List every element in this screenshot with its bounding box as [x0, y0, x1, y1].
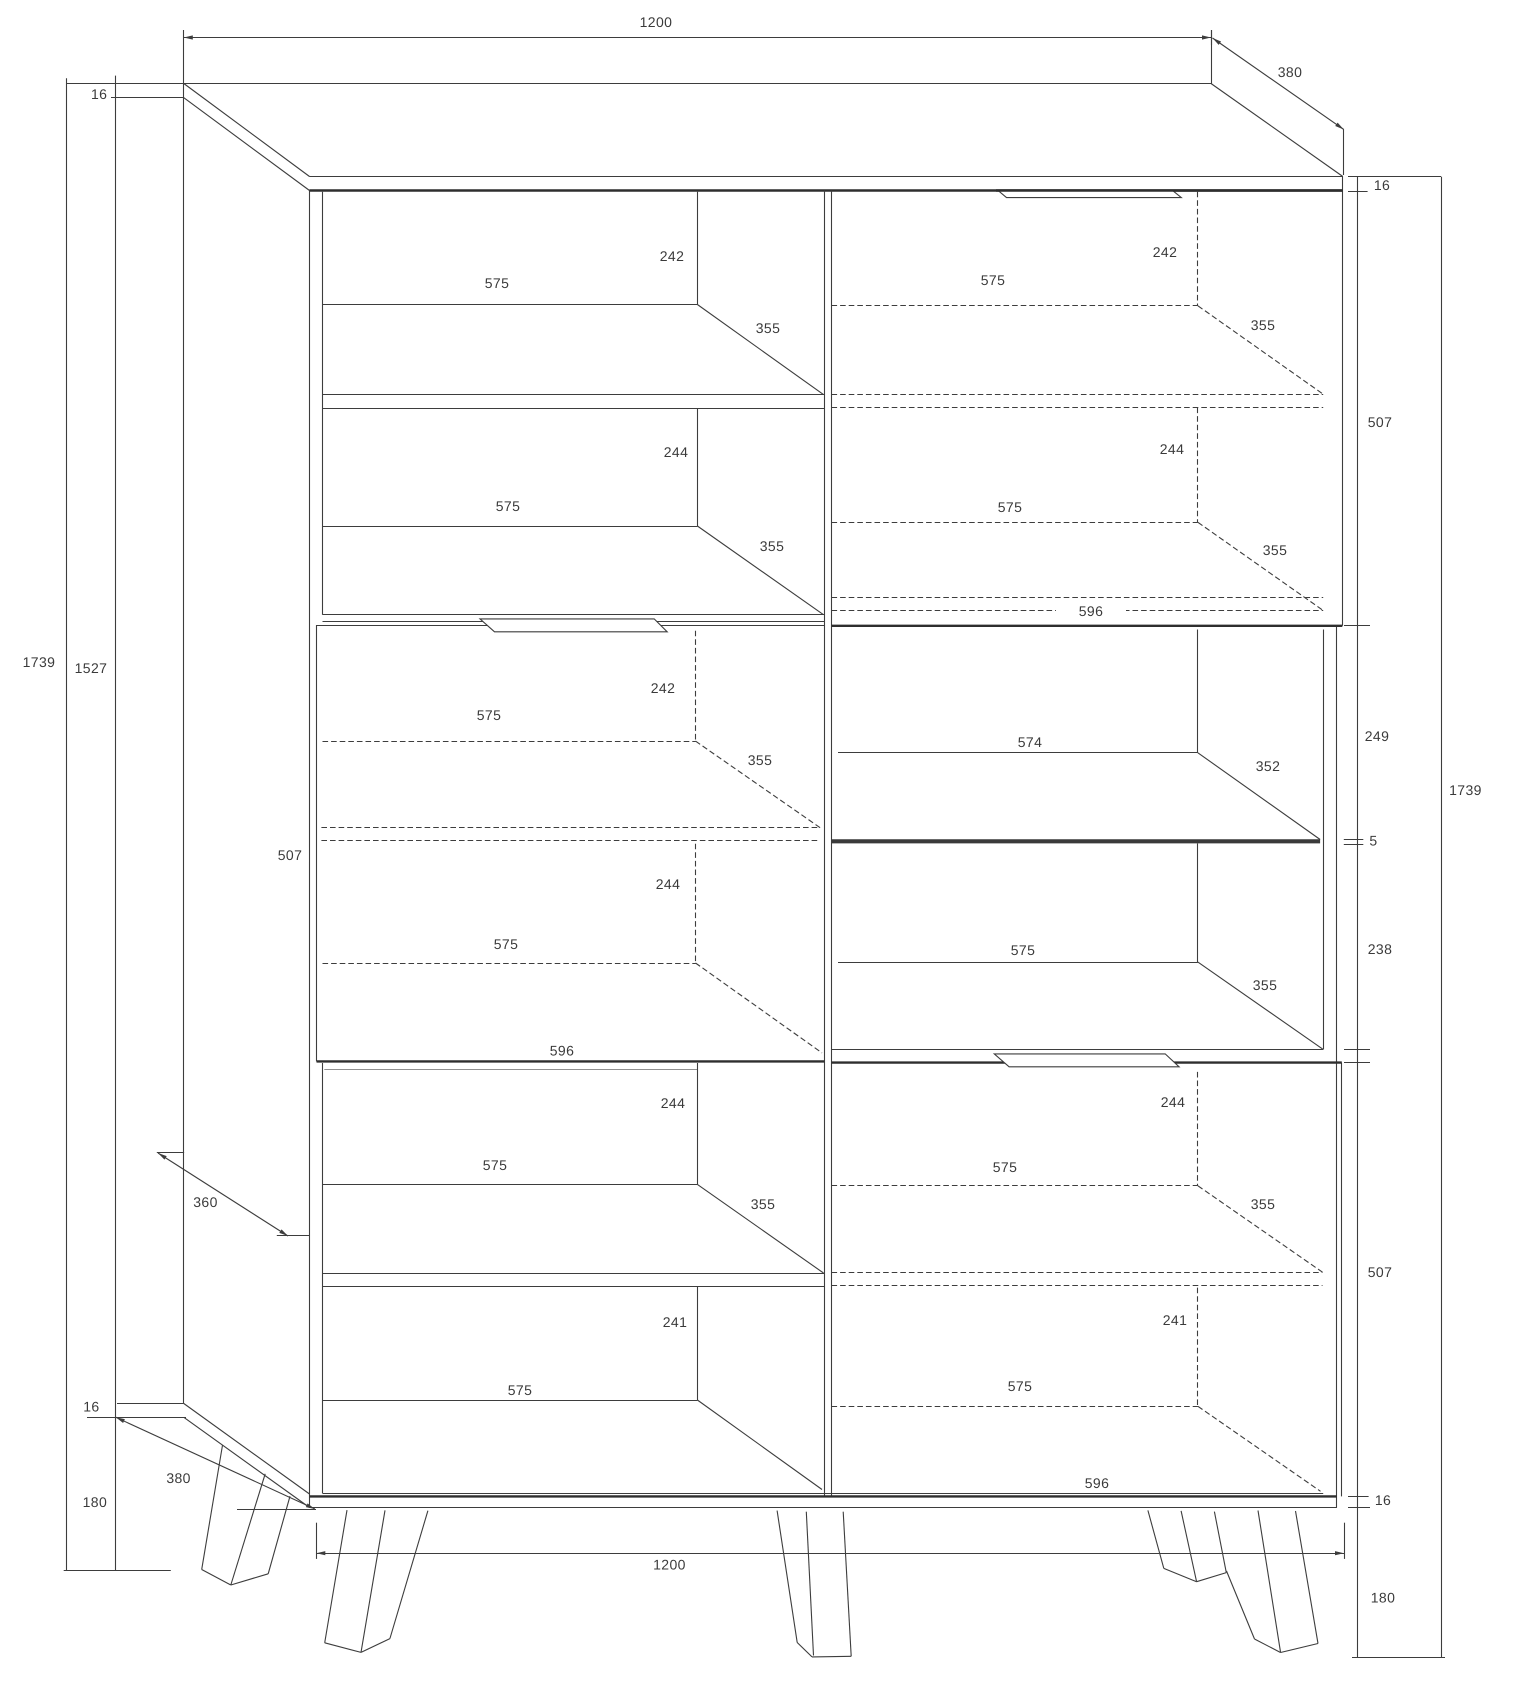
svg-text:16: 16 [91, 86, 107, 102]
svg-text:575: 575 [485, 275, 510, 291]
svg-text:380: 380 [1278, 64, 1303, 80]
svg-text:1739: 1739 [1449, 782, 1482, 798]
svg-text:575: 575 [508, 1382, 533, 1398]
svg-text:241: 241 [663, 1314, 688, 1330]
svg-text:244: 244 [661, 1095, 686, 1111]
svg-text:355: 355 [1251, 1196, 1276, 1212]
svg-text:244: 244 [664, 444, 689, 460]
svg-text:244: 244 [1160, 441, 1185, 457]
svg-text:5: 5 [1369, 833, 1377, 849]
svg-text:16: 16 [1374, 177, 1390, 193]
svg-text:242: 242 [651, 680, 676, 696]
svg-text:575: 575 [494, 936, 519, 952]
svg-text:355: 355 [1253, 977, 1278, 993]
svg-text:355: 355 [756, 320, 781, 336]
svg-text:575: 575 [483, 1157, 508, 1173]
svg-text:180: 180 [83, 1494, 108, 1510]
svg-text:355: 355 [1251, 317, 1276, 333]
svg-text:575: 575 [1008, 1378, 1033, 1394]
svg-text:575: 575 [1011, 942, 1036, 958]
svg-text:241: 241 [1163, 1312, 1188, 1328]
svg-text:352: 352 [1256, 758, 1281, 774]
svg-text:16: 16 [1375, 1492, 1391, 1508]
svg-text:244: 244 [1161, 1094, 1186, 1110]
svg-text:16: 16 [83, 1399, 99, 1415]
svg-text:575: 575 [998, 499, 1023, 515]
svg-text:575: 575 [496, 498, 521, 514]
svg-text:355: 355 [1263, 542, 1288, 558]
svg-text:355: 355 [760, 538, 785, 554]
svg-text:507: 507 [278, 847, 303, 863]
svg-text:575: 575 [477, 707, 502, 723]
svg-text:242: 242 [660, 248, 685, 264]
svg-text:238: 238 [1368, 941, 1393, 957]
svg-text:380: 380 [166, 1470, 191, 1486]
svg-text:249: 249 [1365, 728, 1390, 744]
svg-text:180: 180 [1371, 1590, 1396, 1606]
svg-text:1200: 1200 [653, 1557, 686, 1573]
svg-text:244: 244 [656, 876, 681, 892]
svg-text:360: 360 [193, 1194, 218, 1210]
svg-text:575: 575 [993, 1159, 1018, 1175]
svg-text:355: 355 [751, 1196, 776, 1212]
svg-text:507: 507 [1368, 414, 1393, 430]
svg-text:1200: 1200 [640, 14, 673, 30]
svg-text:355: 355 [748, 752, 773, 768]
svg-text:1739: 1739 [23, 654, 56, 670]
svg-text:1527: 1527 [75, 660, 108, 676]
svg-text:596: 596 [1085, 1475, 1110, 1491]
svg-text:507: 507 [1368, 1264, 1393, 1280]
svg-text:596: 596 [1079, 603, 1104, 619]
svg-text:575: 575 [981, 272, 1006, 288]
svg-text:242: 242 [1153, 244, 1178, 260]
svg-text:574: 574 [1018, 734, 1043, 750]
svg-text:596: 596 [550, 1043, 575, 1059]
